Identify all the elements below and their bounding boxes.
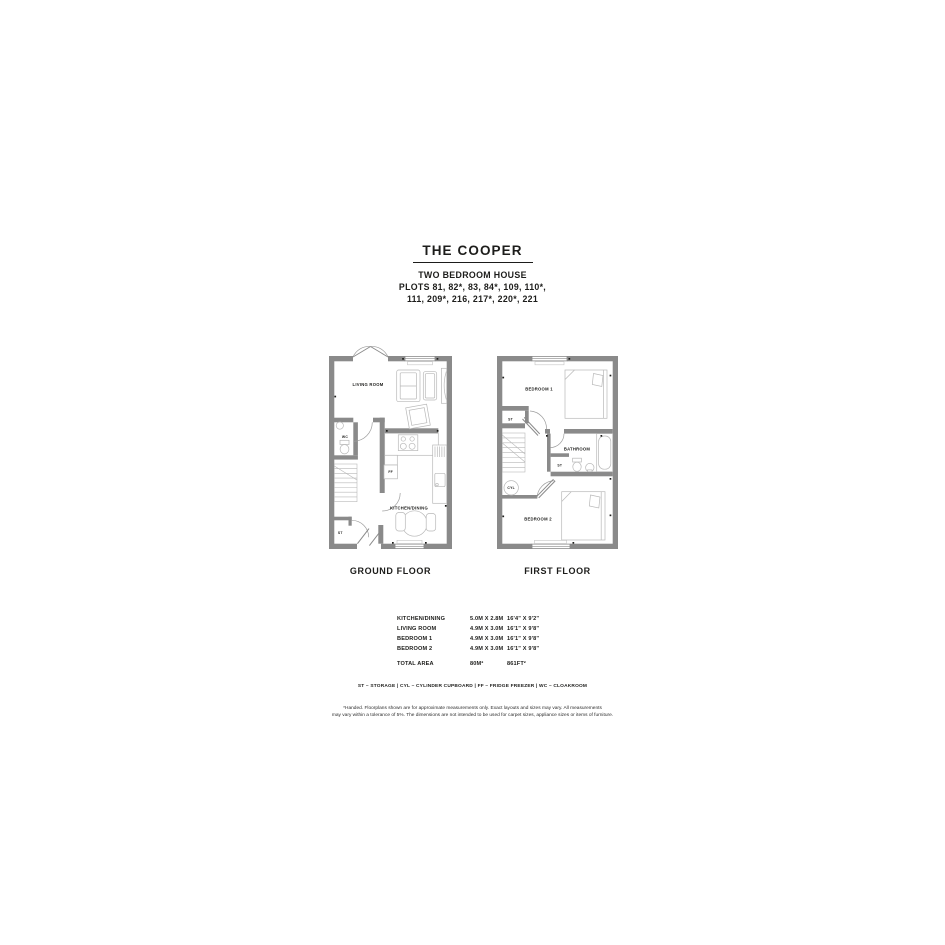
first-floor-caption: FIRST FLOOR (497, 566, 618, 576)
total-area-metric: 80M² (470, 659, 507, 669)
disclaimer-line-1: *Handed. Floorplans shown are for approx… (292, 705, 653, 712)
first-stairs (502, 433, 525, 472)
table-row: BEDROOM 2 4.9M X 3.0M 16'1" X 9'8" (397, 644, 569, 654)
front-door (353, 346, 388, 357)
title-divider (413, 262, 533, 263)
imperial-size: 16'1" X 9'8" (507, 624, 569, 634)
floorplan-page: THE COOPER TWO BEDROOM HOUSE PLOTS 81, 8… (0, 0, 945, 945)
table-row: KITCHEN/DINING 5.0M X 2.8M 16'4" X 9'2" (397, 614, 569, 624)
total-area-imperial: 861FT² (507, 659, 569, 669)
kitchen-units (384, 433, 447, 536)
house-type: TWO BEDROOM HOUSE (322, 270, 623, 280)
ground-floor-caption: GROUND FLOOR (329, 566, 452, 576)
living-room-furniture (397, 368, 447, 429)
imperial-size: 16'1" X 9'8" (507, 634, 569, 644)
bathroom-fixtures (573, 434, 613, 472)
bedroom2-bed (562, 492, 605, 540)
wc-label: WC (342, 435, 348, 439)
cylinder-label: CYL (507, 486, 515, 490)
first-storage-upper-label: ST (508, 418, 514, 422)
title-block: THE COOPER TWO BEDROOM HOUSE PLOTS 81, 8… (322, 243, 623, 304)
bedroom1-bed (565, 370, 607, 418)
imperial-size: 16'1" X 9'8" (507, 644, 569, 654)
living-room-label: LIVING ROOM (353, 382, 384, 387)
bathroom-label: BATHROOM (564, 446, 591, 451)
metric-size: 4.9M X 3.0M (470, 644, 507, 654)
first-floor-plan: CYL (497, 345, 618, 549)
rear-door-leaves (357, 529, 381, 546)
metric-size: 4.9M X 3.0M (470, 634, 507, 644)
room-name: BEDROOM 2 (397, 644, 470, 654)
disclaimer-line-2: may vary within a tolerance of 5%. The d… (292, 712, 653, 719)
room-name: LIVING ROOM (397, 624, 470, 634)
room-name: KITCHEN/DINING (397, 614, 470, 624)
room-name: BEDROOM 1 (397, 634, 470, 644)
imperial-size: 16'4" X 9'2" (507, 614, 569, 624)
bedroom2-label: BEDROOM 2 (524, 516, 552, 521)
bedroom1-label: BEDROOM 1 (525, 386, 553, 391)
abbreviation-legend: ST – STORAGE | CYL – CYLINDER CUPBOARD |… (322, 684, 623, 689)
fridge-freezer-label: FF (388, 470, 393, 474)
table-row: LIVING ROOM 4.9M X 3.0M 16'1" X 9'8" (397, 624, 569, 634)
table-row: BEDROOM 1 4.9M X 3.0M 16'1" X 9'8" (397, 634, 569, 644)
metric-size: 4.9M X 3.0M (470, 624, 507, 634)
plots-line-1: PLOTS 81, 82*, 83, 84*, 109, 110*, (322, 283, 623, 292)
first-storage-landing-label: ST (557, 463, 563, 467)
kitchen-dining-label: KITCHEN/DINING (390, 505, 428, 510)
ground-stairs (334, 464, 357, 502)
disclaimer: *Handed. Floorplans shown are for approx… (292, 705, 653, 720)
cylinder-cupboard: CYL (504, 481, 518, 495)
plots-line-2: 111, 209*, 216, 217*, 220*, 221 (322, 295, 623, 304)
metric-size: 5.0M X 2.8M (470, 614, 507, 624)
dimensions-table: KITCHEN/DINING 5.0M X 2.8M 16'4" X 9'2" … (397, 614, 569, 669)
total-area-label: TOTAL AREA (397, 659, 470, 669)
total-area-row: TOTAL AREA 80M² 861FT² (397, 659, 569, 669)
page-title: THE COOPER (322, 243, 623, 258)
ground-storage-label: ST (338, 531, 344, 535)
ground-floor-plan: LIVING ROOM WC ST FF KITCHEN/DINING (329, 345, 452, 549)
